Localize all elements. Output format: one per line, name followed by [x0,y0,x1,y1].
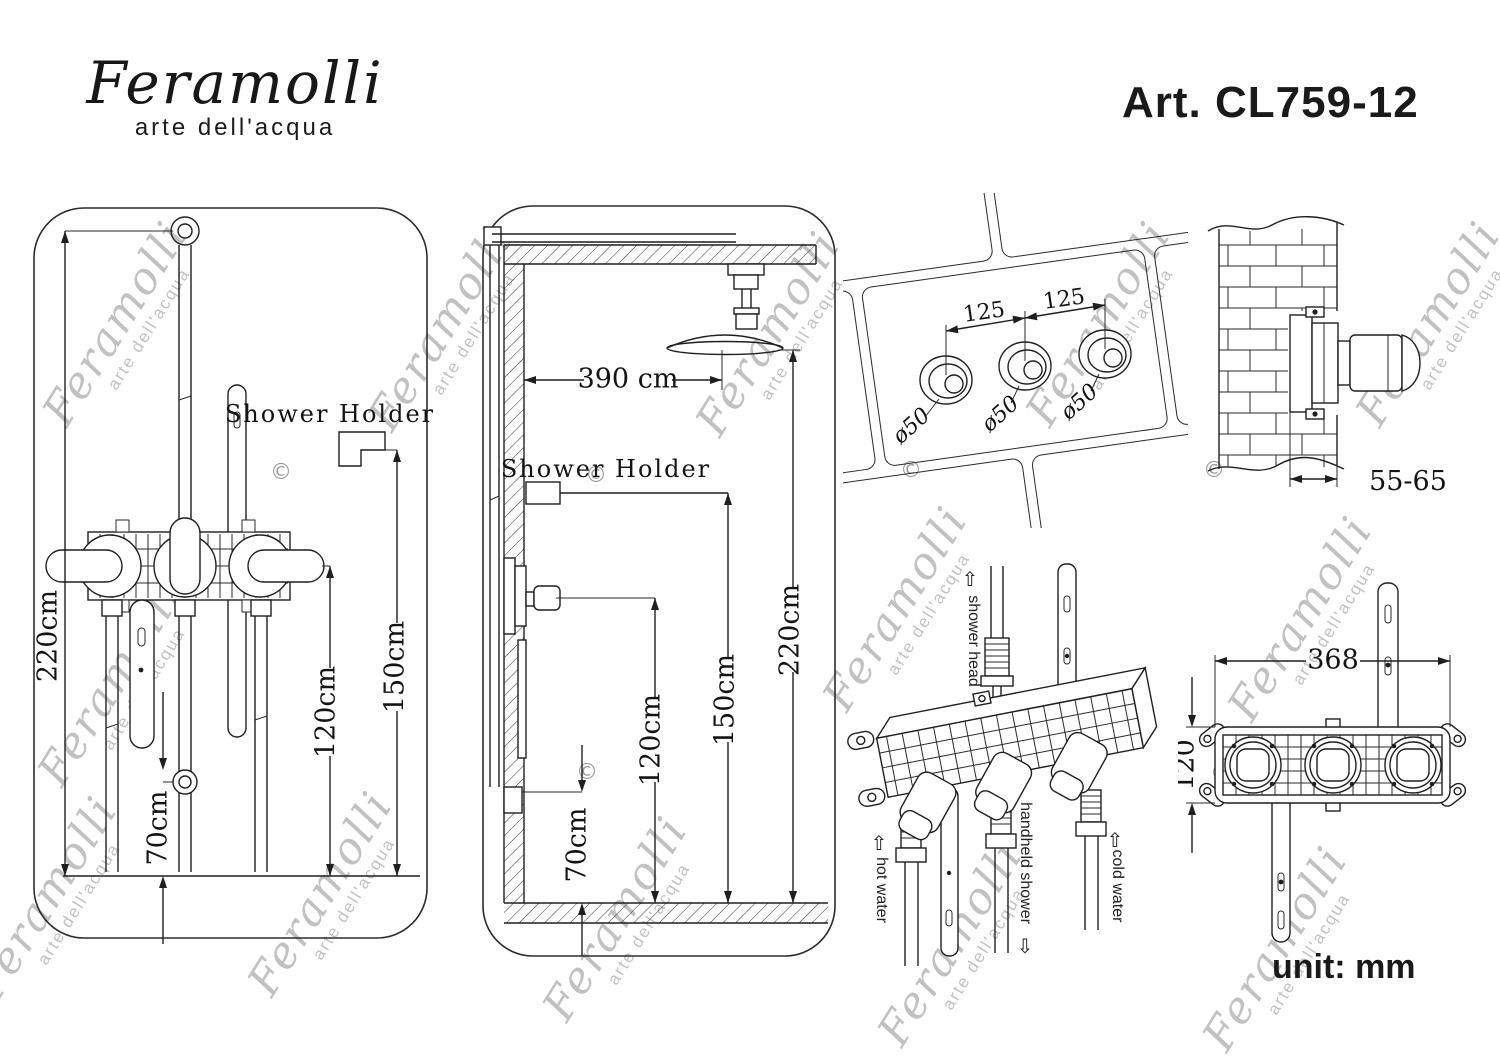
front-dim-mixer: 120cm [311,566,342,876]
hole-diameter-label: ø50 [887,403,935,450]
front-shower-holder-label: Shower Holder [225,400,433,428]
spacing-right-label: 125 [1042,284,1087,315]
wall-section-figure: 55-65 [1192,207,1492,502]
body-width-label: 368 [1307,645,1359,676]
front-holder-bracket [339,432,397,466]
front-elevation-figure: 220cm Shower Holder 150cm 120cm 70 [28,200,433,945]
side-dim-outlet-label: 70cm [562,807,593,882]
shower-head-port-label: shower head [965,595,982,687]
cold-water-pipe [1076,790,1106,930]
hole-diameter-callouts: ø50 ø50 ø50 [887,374,1103,450]
rough-in-valve-3d-figure: ⇧ shower head ⇧ hot water handheld showe… [845,538,1195,1033]
cold-water-port-label: cold water [1109,850,1126,924]
valve-opening [1305,737,1361,793]
handheld-shower-pipe [986,800,1016,953]
hole-diameter-label: ø50 [1055,379,1103,426]
valve-opening [1225,737,1281,793]
valve-body-front [1197,719,1468,811]
lower-mounting-strap [1272,788,1290,942]
article-number: Art. CL759-12 [1122,78,1482,128]
body-height-dimension: 120 [1178,677,1215,853]
side-ceiling-mount [728,264,764,329]
side-dim-height: 220cm [775,350,806,903]
shower-head-outlet-pipe [981,566,1013,710]
brand-tagline: arte dell'acqua [70,114,400,142]
hot-water-port-label: hot water [873,857,890,923]
flow-up-arrow-icon: ⇧ [962,567,979,591]
side-dim-holder: 150cm [710,493,741,903]
embedded-valve-section [1288,307,1420,419]
side-dim-ceiling-arm: 390 cm [524,350,722,395]
front-dim-height-label: 220cm [33,590,64,682]
front-dim-handshower-label: 70cm [143,790,174,865]
body-width-dimension: 368 [1215,645,1450,728]
flow-up-arrow-icon: ⇧ [871,831,888,855]
brand-name: Feramolli [70,52,400,114]
side-panel-border [483,206,835,956]
front-dim-holder: 150cm [380,450,411,876]
embed-depth-label: 55-65 [1369,466,1447,497]
side-dim-ceiling-arm-label: 390 cm [578,364,679,395]
front-shower-riser [171,217,199,532]
flow-down-arrow-icon: ⇩ [1017,934,1034,958]
valve-opening [1385,737,1441,793]
rough-in-valve-front-figure: 368 120 [1178,553,1488,993]
side-floor [504,903,828,923]
side-shower-holder-label: Shower Holder [501,455,711,483]
side-dim-holder-label: 150cm [710,654,741,746]
side-holder-bracket [526,482,728,504]
brand-logo: Feramolli arte dell'acqua [70,52,400,142]
spacing-left-label: 125 [962,297,1007,328]
upper-mounting-strap [1378,583,1398,735]
diagram-page: Feramolliarte dell'acqua Feramolliarte d… [0,0,1500,1058]
flow-up-arrow-icon: ⇧ [1107,828,1124,852]
front-dim-mixer-label: 120cm [311,666,342,758]
front-dim-holder-label: 150cm [380,621,411,713]
handheld-shower-port-label: handheld shower [1017,802,1034,925]
body-height-label: 120 [1178,739,1201,791]
side-dim-outlet: 70cm [522,745,593,956]
side-rain-shower-head [667,335,783,355]
side-dim-mixer-label: 120cm [636,694,667,786]
side-dim-height-label: 220cm [775,584,806,676]
hole-diameter-label: ø50 [976,391,1024,438]
wall-drilling-figure: 125 125 ø50 ø50 ø50 [843,193,1188,528]
side-elevation-figure: 390 cm Shower Holder 150cm 22 [478,200,840,962]
front-mixer-valve [46,518,324,612]
